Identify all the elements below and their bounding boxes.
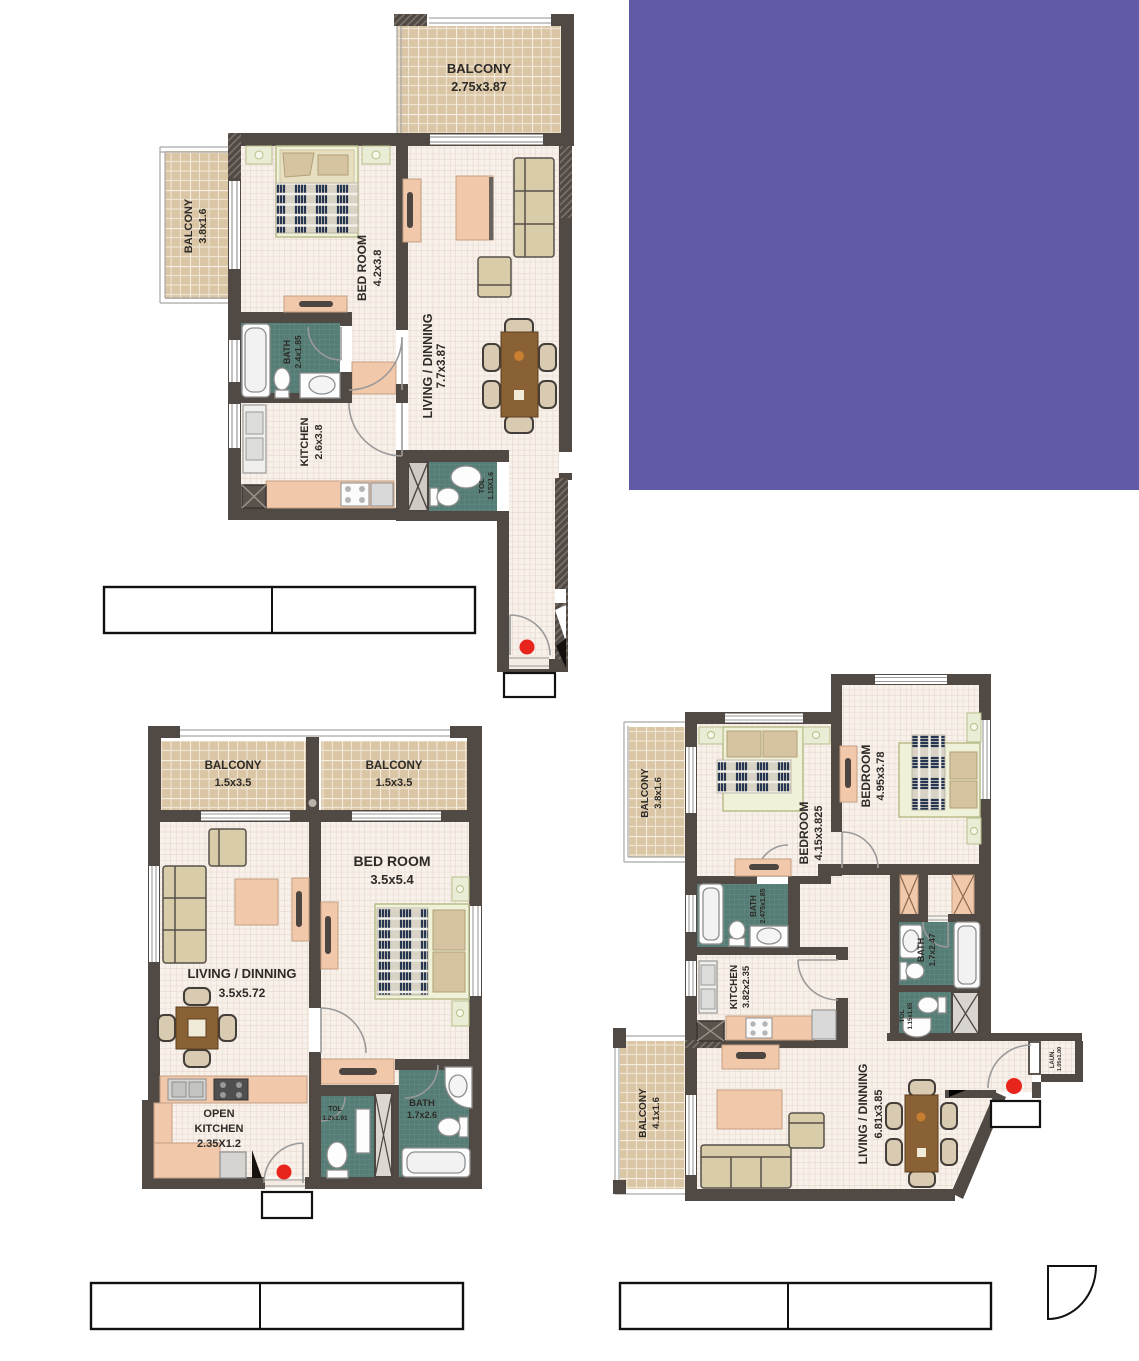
svg-text:BATH: BATH [409,1098,435,1109]
svg-text:KITCHEN: KITCHEN [195,1123,244,1135]
svg-text:2.6x3.8: 2.6x3.8 [313,424,325,459]
svg-text:1.7x2.6: 1.7x2.6 [407,1110,437,1120]
svg-text:BED ROOM: BED ROOM [354,853,431,869]
svg-text:2.4x1.85: 2.4x1.85 [293,335,303,368]
svg-text:4.95x3.78: 4.95x3.78 [875,752,887,801]
svg-text:BATH: BATH [749,895,758,917]
svg-text:LIVING / DINNING: LIVING / DINNING [421,314,435,419]
svg-text:1.2x1.91: 1.2x1.91 [322,1115,348,1122]
svg-text:3.8x1.6: 3.8x1.6 [653,777,664,809]
svg-text:2.475x1.85: 2.475x1.85 [760,888,767,923]
svg-text:6.81x3.85: 6.81x3.85 [873,1090,885,1139]
svg-text:7.7x3.87: 7.7x3.87 [436,344,448,389]
svg-text:LIVING / DINNING: LIVING / DINNING [856,1064,870,1165]
svg-text:BALCONY: BALCONY [640,768,651,818]
svg-text:BALCONY: BALCONY [366,760,423,772]
svg-text:LIVING / DINNING: LIVING / DINNING [187,966,296,981]
svg-text:TOL: TOL [477,478,486,493]
svg-text:3.82x2.35: 3.82x2.35 [741,965,752,1008]
svg-text:BALCONY: BALCONY [205,760,262,772]
svg-text:BATH: BATH [282,340,292,364]
svg-text:1.15X1.6: 1.15X1.6 [488,472,495,500]
svg-text:4.1x1.6: 4.1x1.6 [651,1097,662,1129]
svg-text:BED ROOM: BED ROOM [355,235,369,301]
svg-text:3.8x1.6: 3.8x1.6 [197,208,209,243]
svg-text:BALCONY: BALCONY [447,61,512,76]
svg-text:1.5x3.5: 1.5x3.5 [376,777,413,789]
svg-text:3.5x5.72: 3.5x5.72 [219,986,266,1000]
svg-text:LAUN.: LAUN. [1050,1050,1056,1069]
svg-text:BEDROOM: BEDROOM [797,802,811,865]
svg-text:OPEN: OPEN [203,1108,234,1120]
svg-text:KITCHEN: KITCHEN [729,965,740,1009]
svg-text:4.15x3.825: 4.15x3.825 [813,805,825,860]
svg-text:BATH: BATH [916,938,926,962]
svg-text:1.7x2.47: 1.7x2.47 [927,933,937,966]
svg-text:2.75x3.87: 2.75x3.87 [451,80,507,94]
svg-text:BALCONY: BALCONY [183,198,195,253]
svg-text:1.5x3.5: 1.5x3.5 [215,777,252,789]
svg-text:3.5x5.4: 3.5x5.4 [370,872,414,887]
svg-text:1.05x1.00: 1.05x1.00 [1057,1047,1063,1071]
svg-text:TOL: TOL [328,1106,343,1113]
svg-text:2.35X1.2: 2.35X1.2 [197,1138,241,1150]
svg-text:KITCHEN: KITCHEN [299,418,311,467]
svg-text:TOL: TOL [899,1010,906,1023]
svg-text:4.2x3.8: 4.2x3.8 [372,250,384,287]
svg-text:BEDROOM: BEDROOM [859,745,873,808]
svg-text:1.15x1.65: 1.15x1.65 [908,1002,914,1029]
svg-text:BALCONY: BALCONY [638,1088,649,1138]
